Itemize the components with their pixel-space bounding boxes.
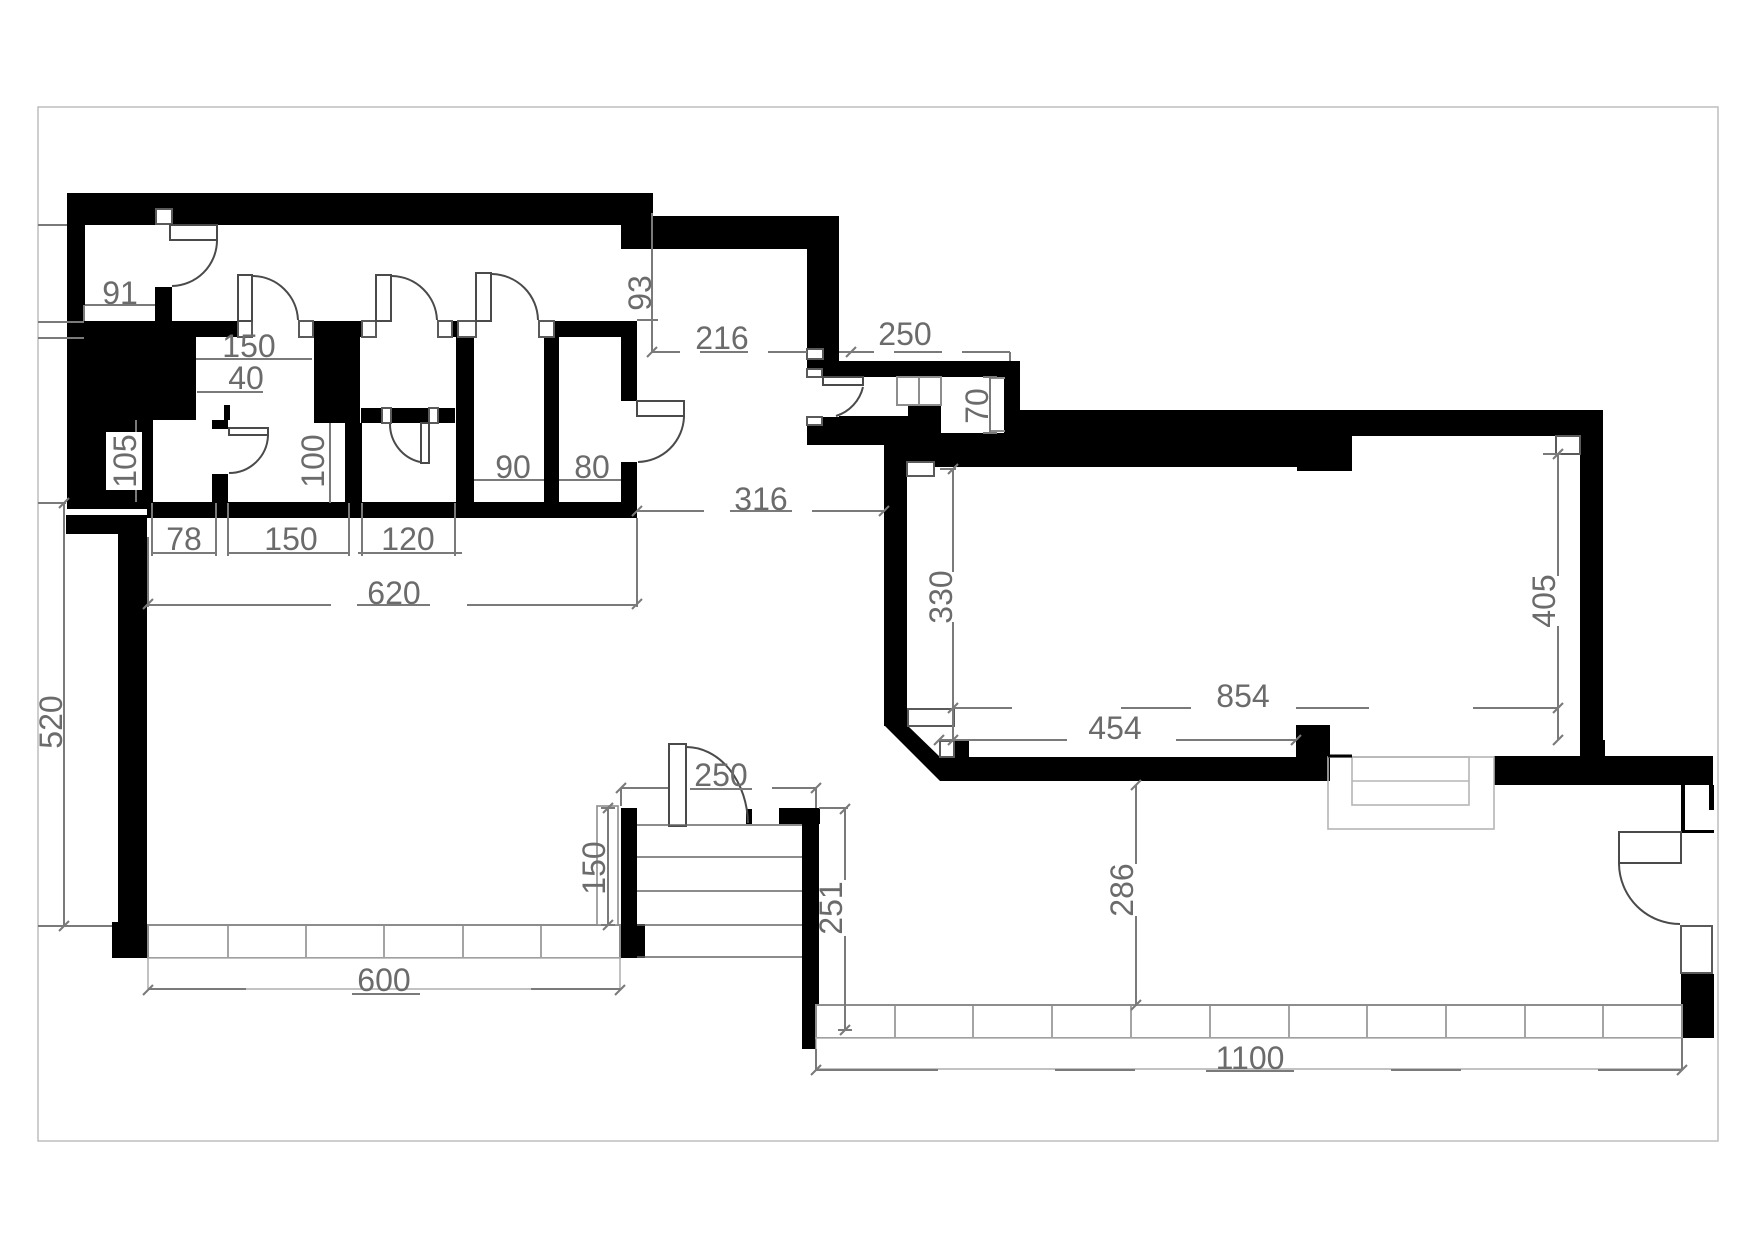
svg-text:250: 250 bbox=[878, 316, 931, 352]
svg-text:120: 120 bbox=[381, 521, 434, 557]
svg-text:150: 150 bbox=[222, 328, 275, 364]
svg-text:78: 78 bbox=[166, 521, 202, 557]
svg-text:454: 454 bbox=[1088, 710, 1141, 746]
svg-text:91: 91 bbox=[102, 275, 138, 311]
svg-text:216: 216 bbox=[695, 320, 748, 356]
svg-text:405: 405 bbox=[1526, 574, 1562, 627]
svg-text:330: 330 bbox=[923, 570, 959, 623]
svg-text:40: 40 bbox=[228, 360, 264, 396]
svg-text:90: 90 bbox=[495, 449, 531, 485]
svg-text:1100: 1100 bbox=[1216, 1040, 1285, 1076]
svg-text:250: 250 bbox=[694, 757, 747, 793]
svg-text:316: 316 bbox=[734, 481, 787, 517]
svg-text:600: 600 bbox=[357, 962, 410, 998]
svg-text:80: 80 bbox=[574, 449, 610, 485]
svg-text:93: 93 bbox=[622, 275, 658, 311]
svg-text:520: 520 bbox=[33, 695, 69, 748]
svg-text:620: 620 bbox=[367, 575, 420, 611]
svg-text:251: 251 bbox=[813, 881, 849, 934]
svg-text:286: 286 bbox=[1104, 863, 1140, 916]
svg-text:854: 854 bbox=[1216, 678, 1269, 714]
svg-text:105: 105 bbox=[107, 434, 143, 487]
svg-text:70: 70 bbox=[959, 388, 995, 424]
svg-text:100: 100 bbox=[295, 434, 331, 487]
svg-text:150: 150 bbox=[576, 841, 612, 894]
svg-text:150: 150 bbox=[264, 521, 317, 557]
